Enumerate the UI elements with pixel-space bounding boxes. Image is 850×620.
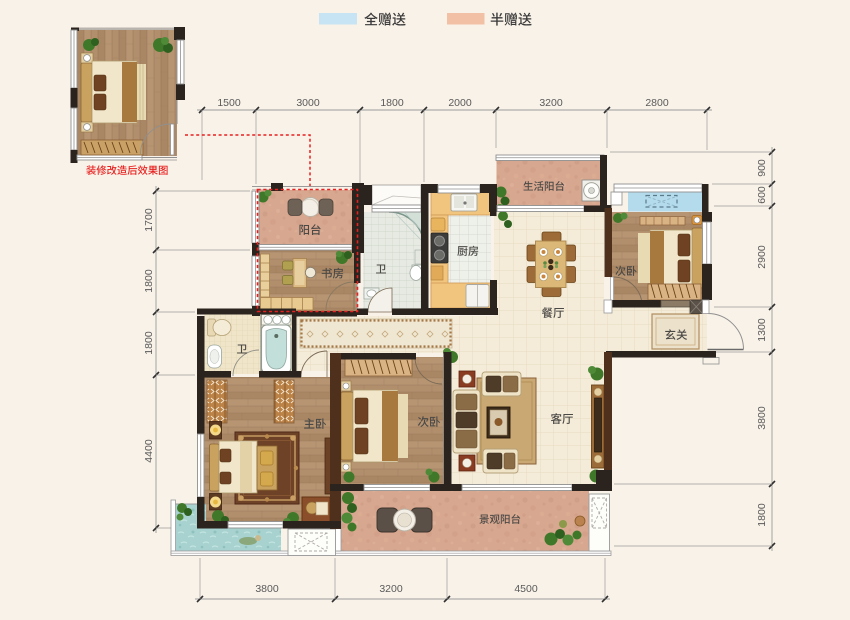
svg-text:3800: 3800 <box>756 406 768 430</box>
svg-text:1300: 1300 <box>756 318 768 342</box>
svg-text:3000: 3000 <box>296 97 320 109</box>
svg-text:4500: 4500 <box>514 583 538 595</box>
svg-text:3200: 3200 <box>539 97 563 109</box>
svg-text:2900: 2900 <box>756 245 768 269</box>
svg-text:1500: 1500 <box>217 97 241 109</box>
svg-text:900: 900 <box>756 159 768 177</box>
svg-text:1800: 1800 <box>143 269 155 293</box>
svg-text:3800: 3800 <box>255 583 279 595</box>
svg-text:2000: 2000 <box>448 97 472 109</box>
svg-text:4400: 4400 <box>143 439 155 463</box>
svg-text:1700: 1700 <box>143 208 155 232</box>
svg-text:1800: 1800 <box>380 97 404 109</box>
svg-text:1800: 1800 <box>756 503 768 527</box>
svg-text:2800: 2800 <box>645 97 669 109</box>
svg-text:600: 600 <box>756 186 768 204</box>
svg-text:1800: 1800 <box>143 331 155 355</box>
svg-text:3200: 3200 <box>379 583 403 595</box>
